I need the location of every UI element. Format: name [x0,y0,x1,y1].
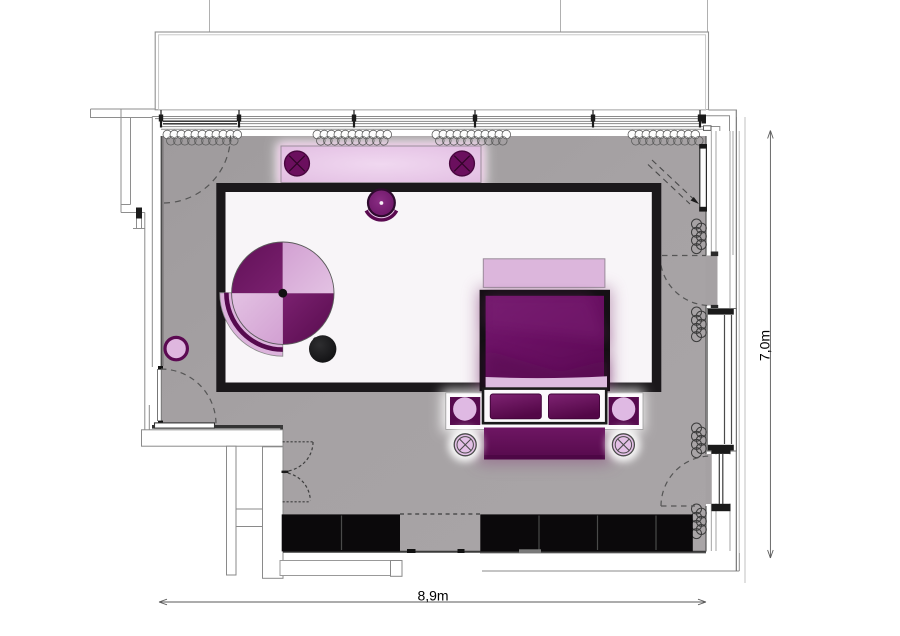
svg-text:8,9m: 8,9m [417,588,448,604]
svg-text:7,0m: 7,0m [756,330,772,361]
